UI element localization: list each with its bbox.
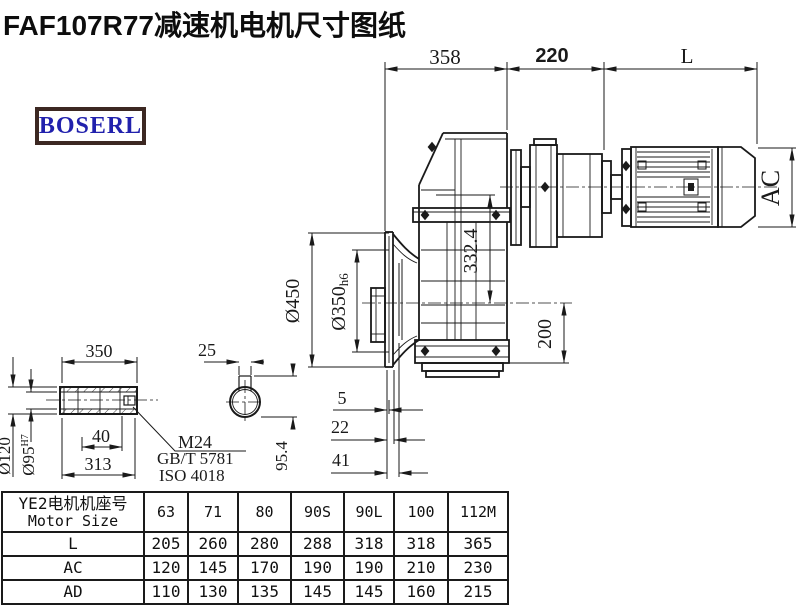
dim-358: 358	[429, 45, 461, 69]
table-cell: 365	[448, 532, 508, 556]
center-lines	[46, 187, 778, 424]
dim-332: 332.4	[460, 229, 482, 274]
dim-120: Ø120	[0, 437, 14, 475]
table-col-90s: 90S	[291, 492, 344, 532]
table-header-cn: YE2电机机座号	[3, 495, 143, 513]
table-cell: 318	[344, 532, 394, 556]
table-col-71: 71	[188, 492, 238, 532]
technical-drawing: 358 220 L AC	[0, 0, 800, 490]
table-cell: 170	[238, 556, 291, 580]
dim-shaft-350: 350	[86, 341, 113, 361]
dim-ac: AC	[756, 170, 785, 206]
dim-L: L	[681, 44, 694, 68]
motor-flange-bolt-marks	[622, 161, 631, 214]
row-label-AC: AC	[2, 556, 144, 580]
table-col-100: 100	[394, 492, 448, 532]
dim-450: Ø450	[282, 279, 304, 323]
table-header-motor-size: YE2电机机座号 Motor Size	[2, 492, 144, 532]
standard-iso: ISO 4018	[159, 466, 225, 485]
helical-gear-stage	[511, 139, 622, 247]
table-row-AC: AC 120 145 170 190 190 210 230	[2, 556, 508, 580]
dim-key-954: 95.4	[272, 441, 291, 471]
table-cell: 318	[394, 532, 448, 556]
table-col-63: 63	[144, 492, 188, 532]
table-cell: 260	[188, 532, 238, 556]
table-cell: 210	[394, 556, 448, 580]
table-row-L: L 205 260 280 288 318 318 365	[2, 532, 508, 556]
table-cell: 130	[188, 580, 238, 604]
table-cell: 120	[144, 556, 188, 580]
dim-shaft-40: 40	[92, 426, 110, 446]
table-row-AD: AD 110 130 135 145 145 160 215	[2, 580, 508, 604]
table-cell: 280	[238, 532, 291, 556]
dim-5: 5	[338, 388, 347, 408]
table-cell: 110	[144, 580, 188, 604]
row-label-AD: AD	[2, 580, 144, 604]
dim-350: Ø350h6	[328, 273, 351, 331]
table-cell: 135	[238, 580, 291, 604]
dim-shaft-313: 313	[85, 454, 112, 474]
table-col-112m: 112M	[448, 492, 508, 532]
table-cell: 205	[144, 532, 188, 556]
dim-95: Ø95H7	[19, 434, 38, 476]
table-cell: 190	[344, 556, 394, 580]
table-cell: 160	[394, 580, 448, 604]
table-cell: 145	[291, 580, 344, 604]
gear-stage-bolt-mark	[541, 182, 550, 192]
table-col-80: 80	[238, 492, 291, 532]
dim-220: 220	[535, 45, 568, 67]
page: { "title": "FAF107R77减速机电机尺寸图纸", "logo":…	[0, 0, 800, 596]
section-dim-lines	[204, 362, 297, 427]
table-cell: 230	[448, 556, 508, 580]
motor-size-table: YE2电机机座号 Motor Size 63 71 80 90S 90L 100…	[1, 491, 509, 605]
dim-22: 22	[331, 417, 349, 437]
table-cell: 215	[448, 580, 508, 604]
dim-key-25: 25	[198, 340, 216, 360]
output-flange	[371, 232, 419, 367]
dim-41: 41	[332, 450, 350, 470]
hollow-shaft-detail	[60, 387, 246, 451]
table-header-en: Motor Size	[3, 513, 143, 530]
table-col-90l: 90L	[344, 492, 394, 532]
table-cell: 190	[291, 556, 344, 580]
table-cell: 288	[291, 532, 344, 556]
table-cell: 145	[188, 556, 238, 580]
dim-200: 200	[534, 319, 556, 349]
row-label-L: L	[2, 532, 144, 556]
table-cell: 145	[344, 580, 394, 604]
